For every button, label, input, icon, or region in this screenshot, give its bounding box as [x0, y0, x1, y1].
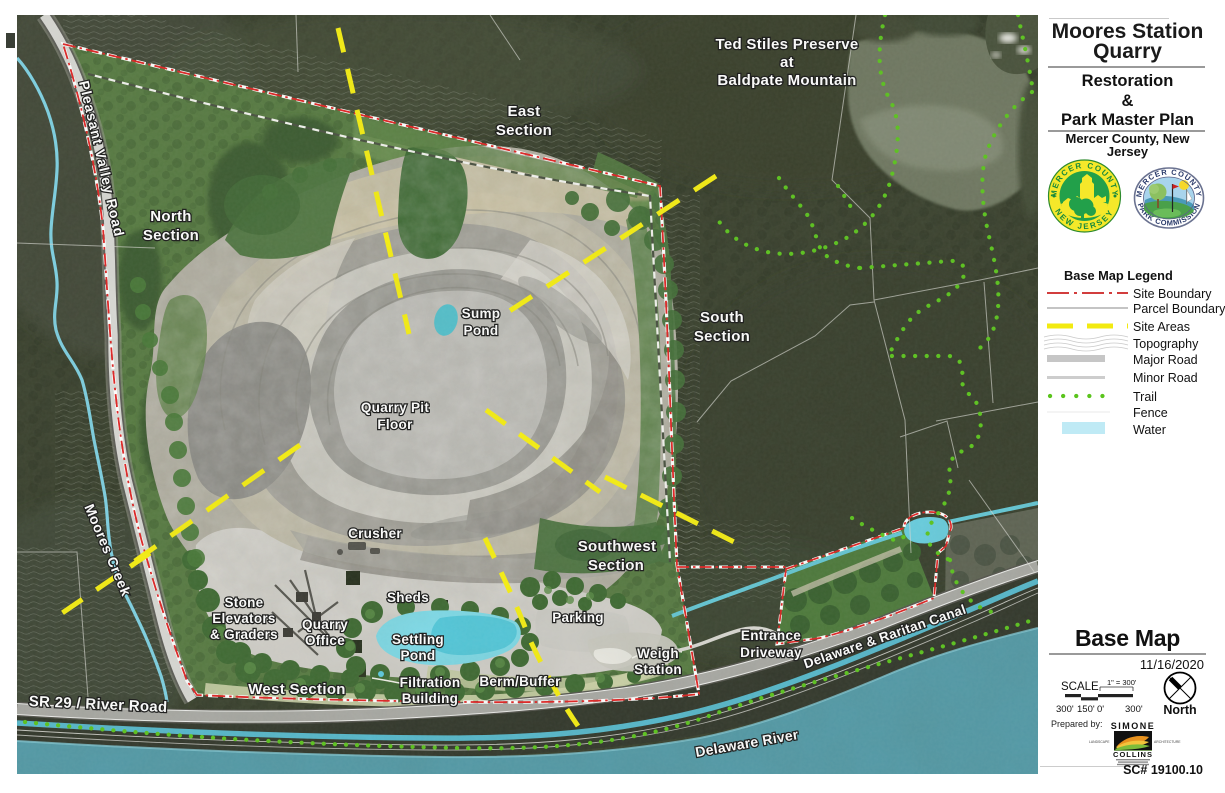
svg-text:SIMONE: SIMONE [1111, 721, 1156, 731]
svg-text:300': 300' [1056, 704, 1074, 715]
svg-text:SCALE: SCALE [1061, 681, 1099, 693]
svg-text:150': 150' [1077, 704, 1095, 715]
svg-text:300': 300' [1125, 704, 1143, 715]
svg-text:COLLINS: COLLINS [1113, 750, 1153, 759]
svg-text:0': 0' [1097, 704, 1104, 715]
svg-text:ARCHITECTURE: ARCHITECTURE [1154, 740, 1181, 744]
svg-text:1" = 300': 1" = 300' [1107, 678, 1137, 687]
svg-text:LANDSCAPE: LANDSCAPE [1089, 740, 1110, 744]
svg-text:North: North [1163, 703, 1196, 717]
